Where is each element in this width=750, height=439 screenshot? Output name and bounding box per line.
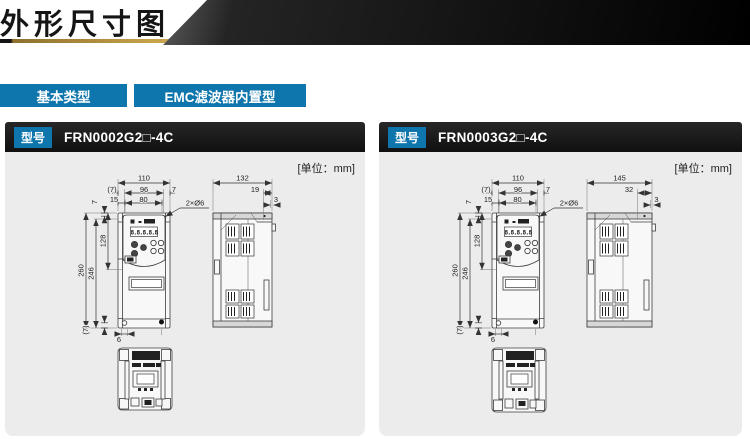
dim-edge: 3: [654, 195, 658, 204]
panel-body: 8.8.8.8.8: [379, 152, 742, 436]
unit-label: [单位：mm]: [675, 160, 732, 176]
panel-frn0003: 型号 FRN0003G2□-4C: [379, 122, 742, 436]
model-badge: 型号: [388, 127, 426, 148]
dim-side-7-right: 7: [546, 185, 550, 194]
dim-hole-height: 246: [460, 267, 469, 280]
dim-offset-15: 15: [110, 195, 118, 204]
panel-header-bar: 型号 FRN0002G2□-4C: [5, 122, 365, 152]
dim-step: 19: [251, 185, 259, 194]
tab-emc-filter-type[interactable]: EMC滤波器内置型: [134, 84, 306, 107]
dim-overall-width: 110: [512, 174, 524, 183]
model-number: FRN0003G2□-4C: [438, 130, 548, 145]
panel-body: 8.8.8.8.8: [5, 152, 365, 436]
dim-overall-width: 110: [138, 174, 150, 183]
panel-header-bar: 型号 FRN0003G2□-4C: [379, 122, 742, 152]
seven-segment-display: 8.8.8.8.8: [130, 229, 158, 236]
front-view-drawing: 8.8.8.8.8: [492, 213, 544, 328]
dimension-drawing-frn0003: 8.8.8.8.8: [379, 152, 739, 436]
dim-hole-span: 96: [140, 185, 148, 194]
dim-overall-height: 260: [76, 264, 85, 277]
page: 外形尺寸图 基本类型 EMC滤波器内置型 型号 FRN0002G2□-4C: [0, 0, 750, 439]
bottom-view-drawing: [492, 348, 546, 412]
dim-step: 32: [625, 185, 633, 194]
front-view-drawing: 8.8.8.8.8: [118, 213, 170, 328]
seven-segment-display: 8.8.8.8.8: [504, 229, 532, 236]
dimension-drawing-frn0002: 8.8.8.8.8: [5, 152, 365, 436]
tab-basic-type[interactable]: 基本类型: [0, 84, 127, 107]
dim-side-7-right: 7: [172, 185, 176, 194]
dim-mounting-holes: 2×Ø6: [186, 199, 205, 208]
dim-overall-height: 260: [450, 264, 459, 277]
model-number: FRN0002G2□-4C: [64, 130, 174, 145]
dim-keypad-width: 80: [513, 195, 521, 204]
dim-edge: 3: [274, 195, 278, 204]
dim-offset-15: 15: [484, 195, 492, 204]
dim-keypad-height: 128: [98, 235, 107, 248]
dim-bottom-hole-offset: (7): [455, 325, 464, 335]
dim-depth: 132: [236, 174, 249, 183]
black-banner: [163, 0, 750, 45]
side-view-drawing: [587, 213, 656, 327]
dim-foot-width: 6: [491, 335, 495, 344]
dim-keypad-height: 128: [472, 235, 481, 248]
dim-bottom-hole-offset: (7): [81, 325, 90, 335]
unit-label: [单位：mm]: [298, 160, 355, 176]
side-view-drawing: [213, 213, 276, 327]
dim-top-hole-offset: 7: [464, 200, 473, 204]
dim-top-hole-offset: 7: [90, 200, 99, 204]
panel-frn0002: 型号 FRN0002G2□-4C: [5, 122, 365, 436]
model-badge: 型号: [14, 127, 52, 148]
dim-foot-width: 6: [117, 335, 121, 344]
dim-keypad-width: 80: [139, 195, 147, 204]
dim-hole-span: 96: [514, 185, 522, 194]
dim-side-7-left: (7): [107, 185, 117, 194]
dim-side-7-left: (7): [481, 185, 491, 194]
bottom-view-drawing: [118, 348, 172, 410]
dim-hole-height: 246: [86, 267, 95, 280]
dim-mounting-holes: 2×Ø6: [560, 199, 579, 208]
dim-depth: 145: [613, 174, 626, 183]
page-title: 外形尺寸图: [0, 1, 170, 43]
page-header: 外形尺寸图: [0, 0, 750, 48]
